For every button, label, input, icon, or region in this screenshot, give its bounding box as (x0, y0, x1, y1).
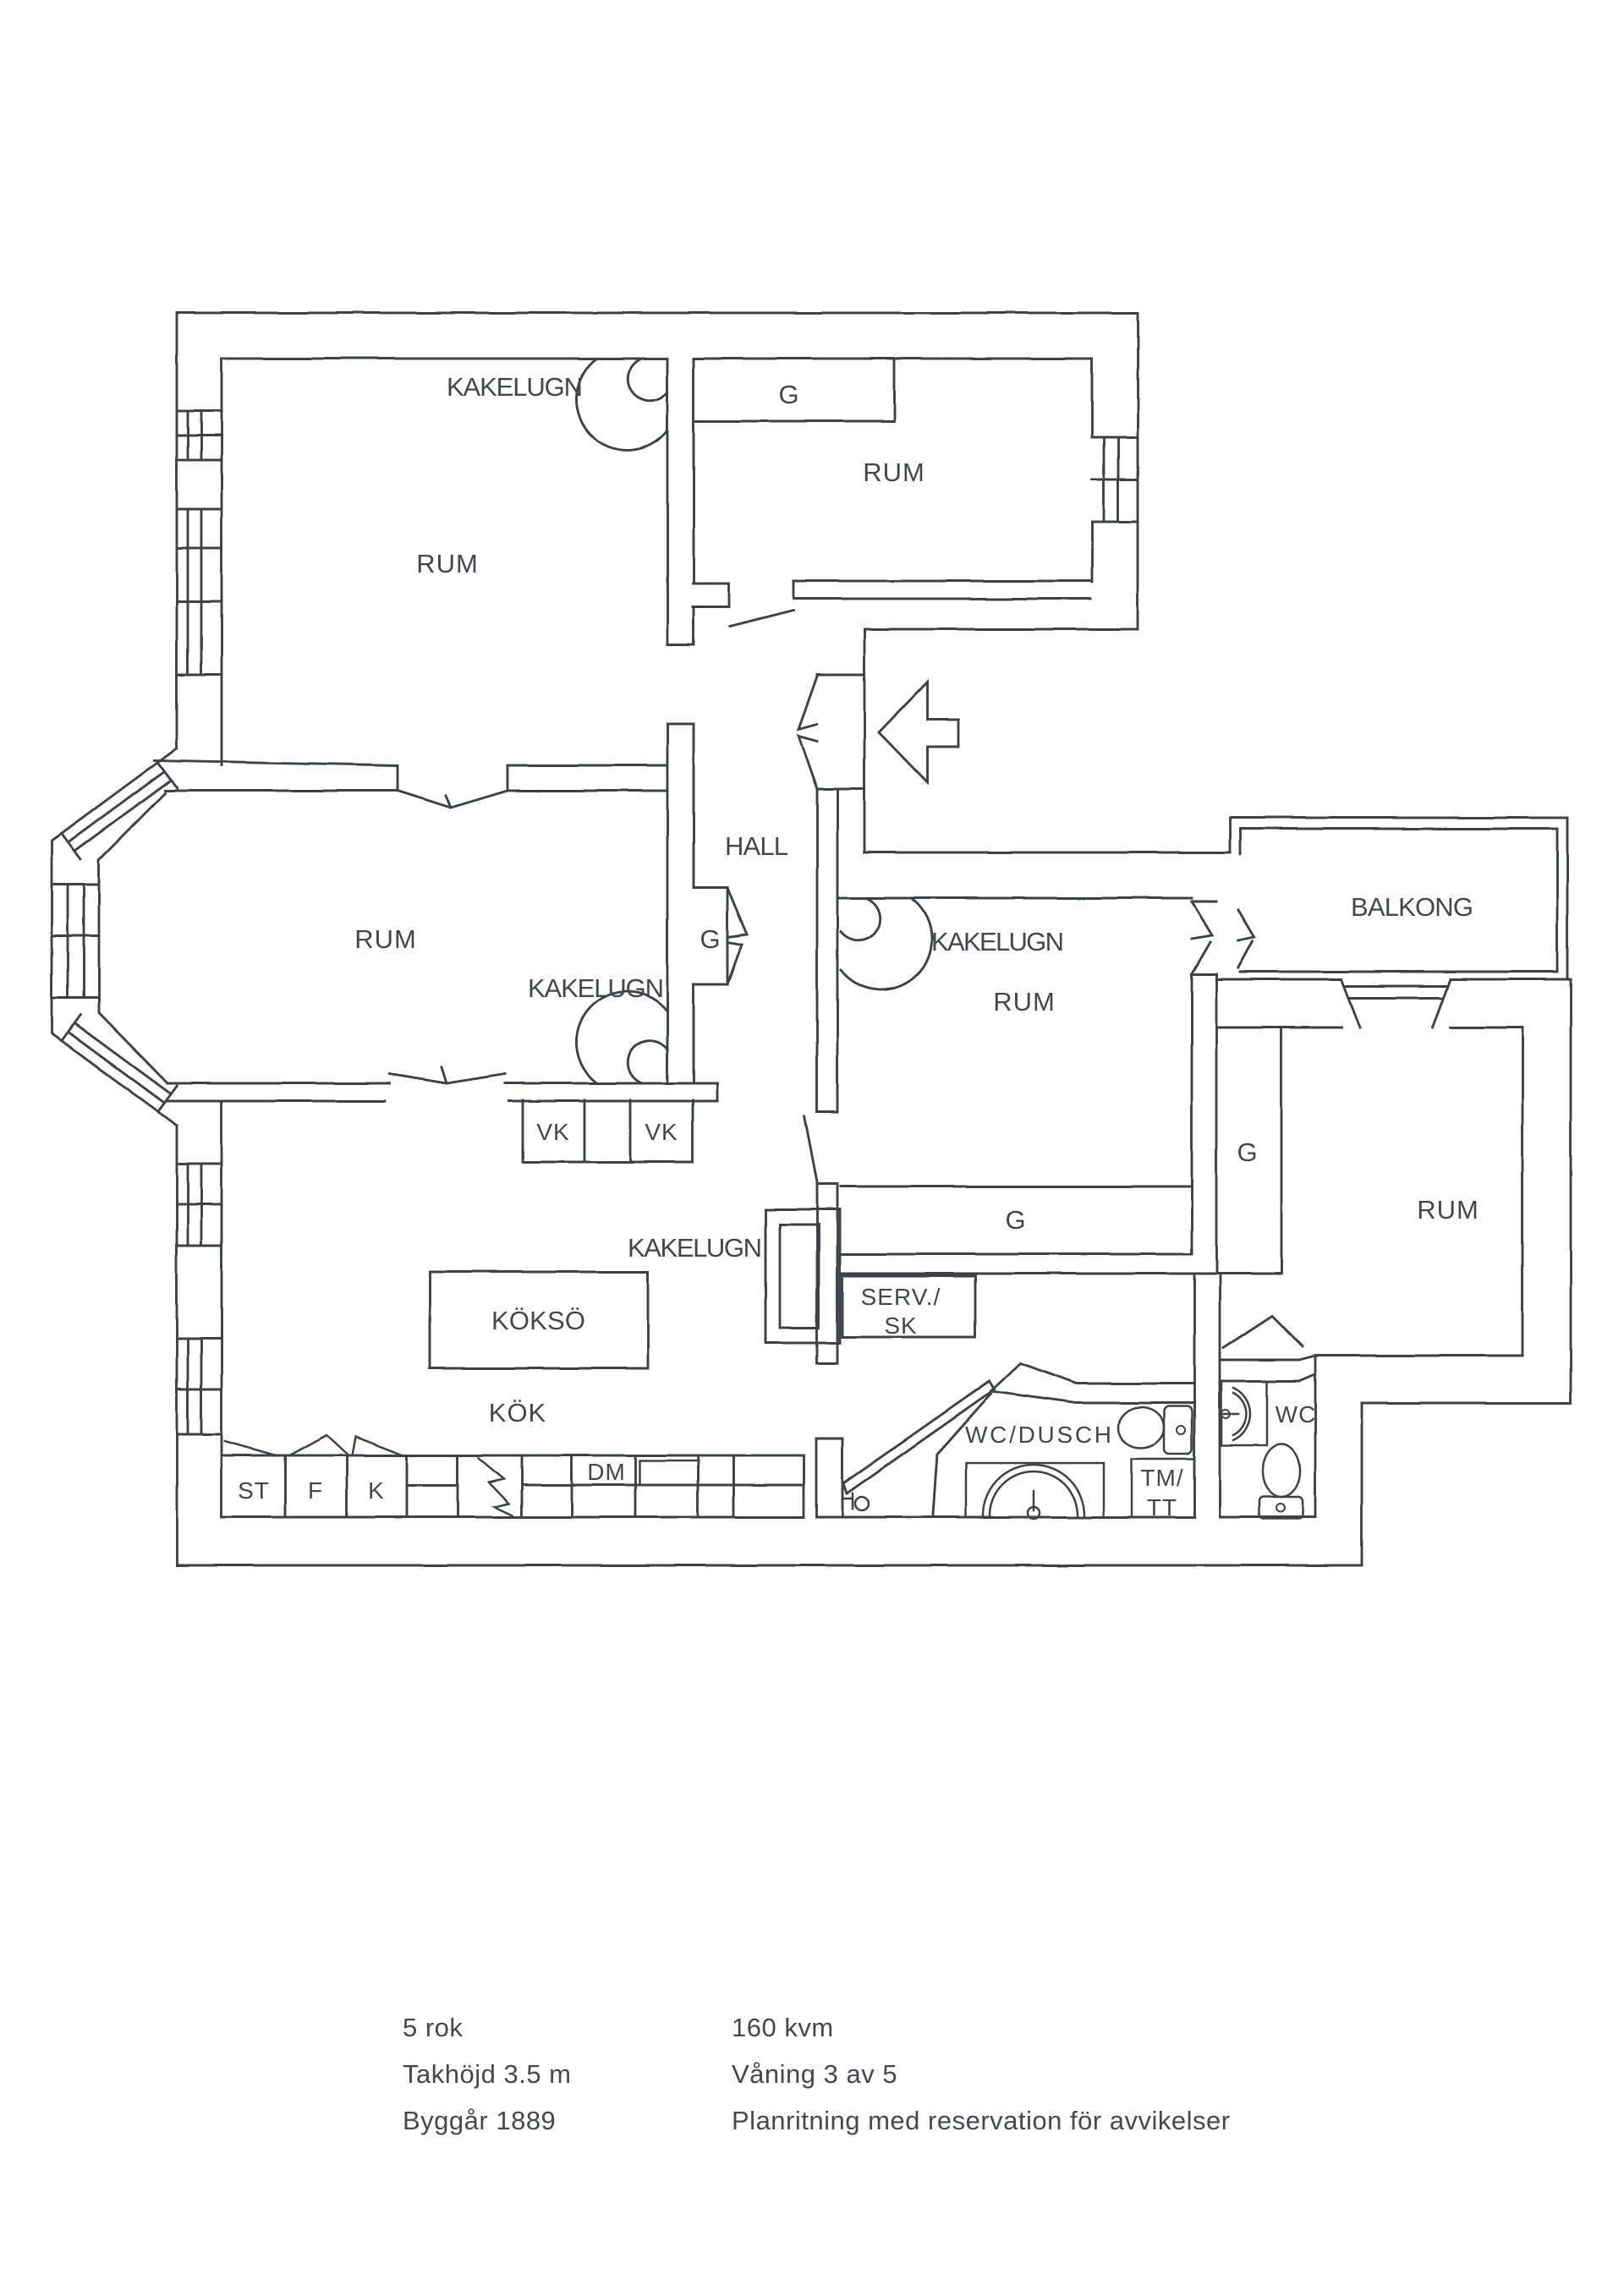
svg-text:KÖK: KÖK (489, 1398, 546, 1427)
svg-text:BALKONG: BALKONG (1351, 892, 1474, 922)
svg-text:RUM: RUM (416, 549, 479, 578)
svg-text:G: G (700, 924, 721, 954)
svg-text:RUM: RUM (863, 458, 925, 487)
svg-text:KAKELUGN: KAKELUGN (447, 372, 584, 402)
svg-text:KAKELUGN: KAKELUGN (528, 973, 665, 1003)
svg-text:KÖKSÖ: KÖKSÖ (491, 1306, 586, 1335)
svg-text:RUM: RUM (1417, 1195, 1479, 1225)
svg-text:SERV./: SERV./ (861, 1284, 941, 1310)
svg-text:WC: WC (1276, 1401, 1317, 1427)
svg-text:Takhöjd 3.5 m: Takhöjd 3.5 m (403, 2059, 572, 2089)
svg-text:G: G (1237, 1137, 1258, 1167)
svg-text:160 kvm: 160 kvm (732, 2013, 834, 2042)
svg-text:Våning 3 av 5: Våning 3 av 5 (732, 2059, 897, 2089)
svg-text:DM: DM (587, 1459, 626, 1485)
svg-text:RUM: RUM (993, 987, 1056, 1016)
svg-text:K: K (368, 1477, 385, 1504)
svg-text:WC/DUSCH: WC/DUSCH (965, 1422, 1112, 1448)
svg-text:KAKELUGN: KAKELUGN (931, 927, 1065, 956)
svg-text:Byggår 1889: Byggår 1889 (403, 2106, 556, 2135)
svg-text:5 rok: 5 rok (403, 2013, 463, 2042)
svg-text:VK: VK (536, 1119, 569, 1145)
svg-text:SK: SK (884, 1312, 917, 1339)
svg-text:HALL: HALL (725, 831, 789, 861)
svg-text:ST: ST (238, 1477, 270, 1504)
svg-text:VK: VK (645, 1119, 678, 1145)
svg-text:KAKELUGN: KAKELUGN (628, 1233, 763, 1263)
svg-text:RUM: RUM (354, 924, 417, 954)
svg-text:F: F (308, 1477, 323, 1504)
svg-text:TM/: TM/ (1140, 1465, 1183, 1491)
svg-text:G: G (778, 380, 799, 409)
svg-text:G: G (1005, 1205, 1026, 1235)
svg-text:Planritning med reservation fö: Planritning med reservation för avvikels… (732, 2106, 1231, 2135)
svg-text:TT: TT (1147, 1494, 1177, 1521)
